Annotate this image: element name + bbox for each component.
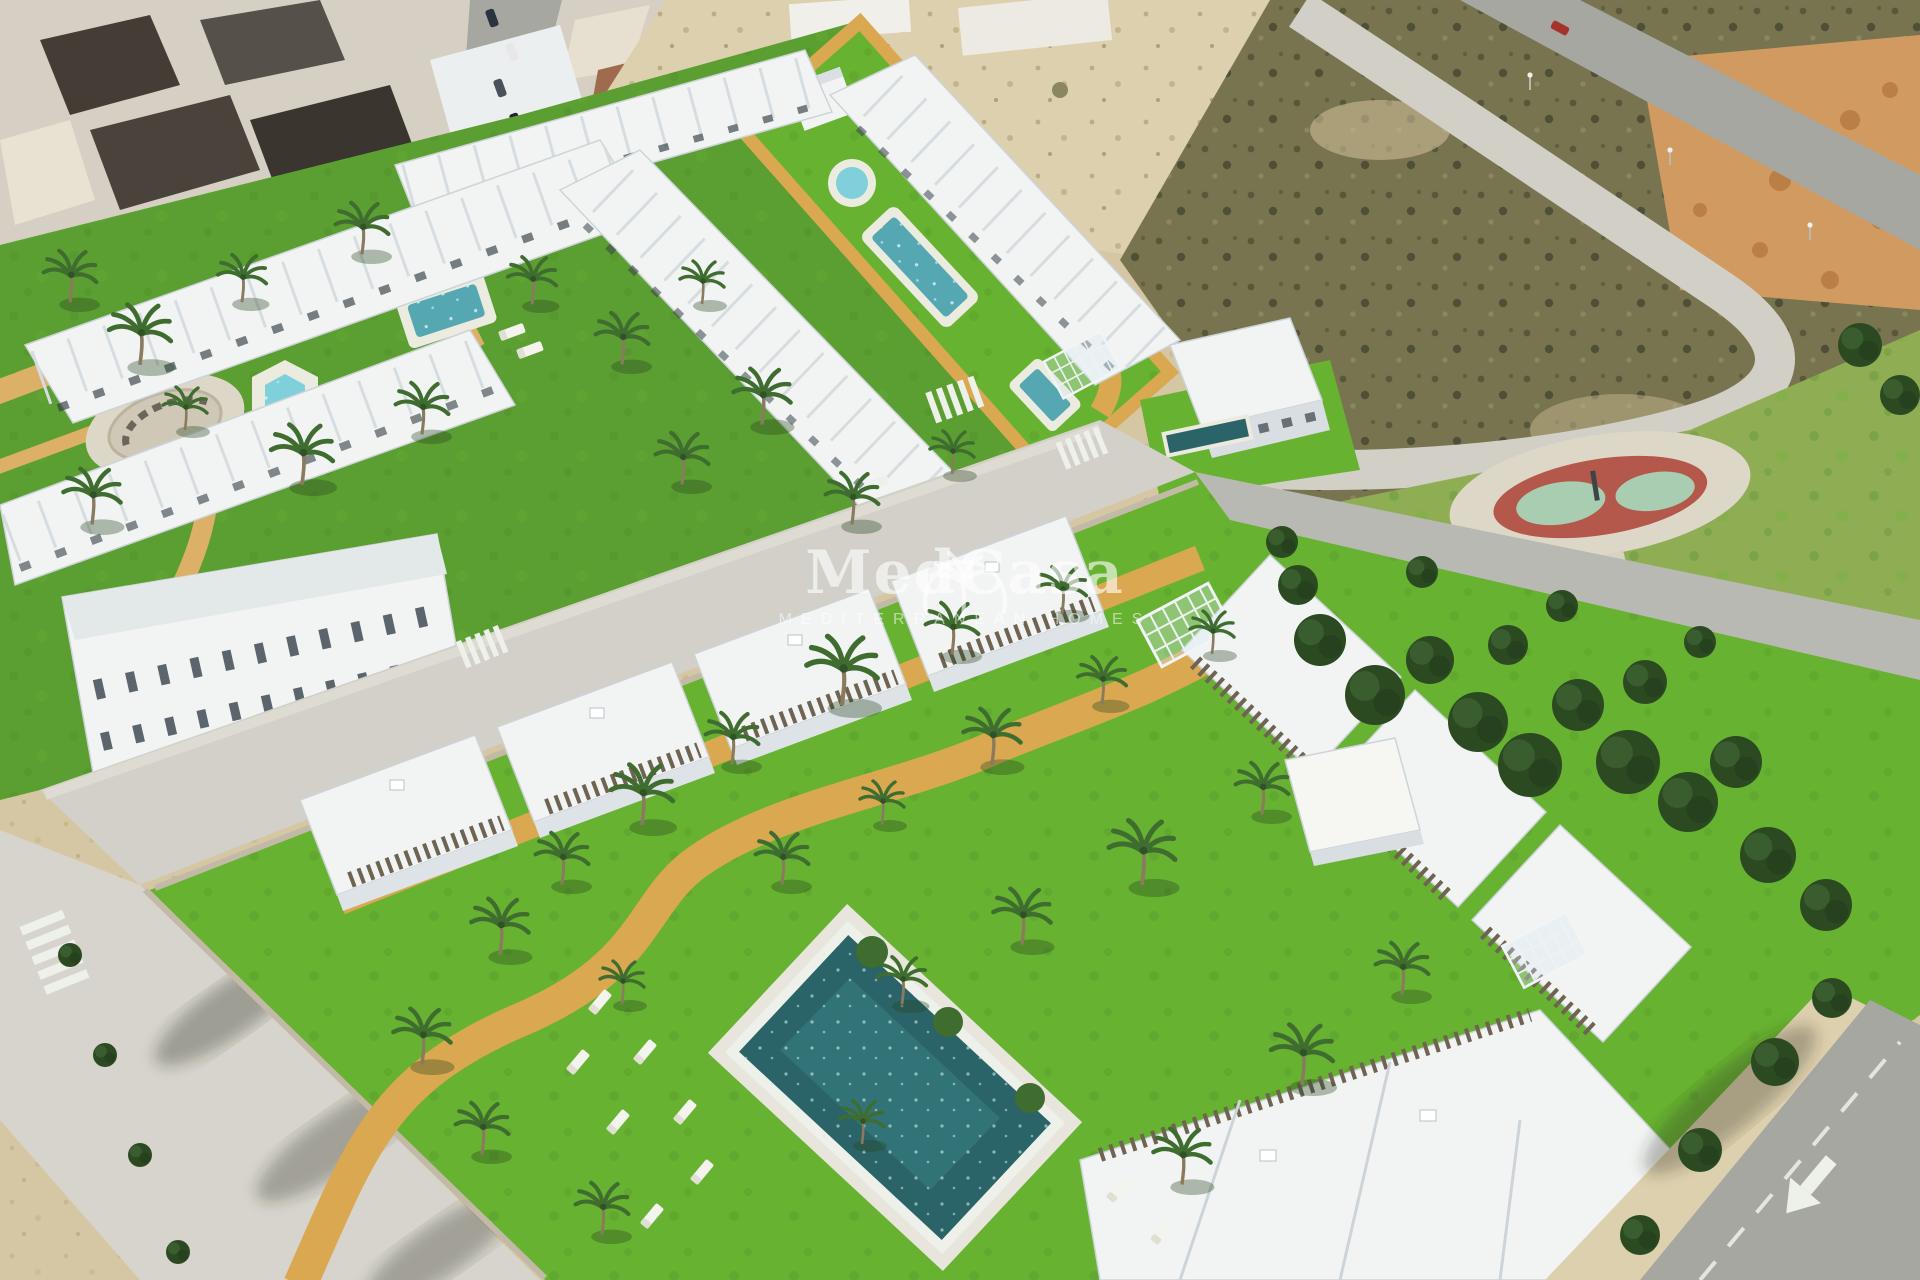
pool-planter	[933, 1007, 963, 1037]
pool-planter	[1015, 1083, 1045, 1113]
aerial-render: MedCasa MEDITERRANEAN HOMES	[0, 0, 1920, 1280]
scene-svg	[0, 0, 1920, 1280]
